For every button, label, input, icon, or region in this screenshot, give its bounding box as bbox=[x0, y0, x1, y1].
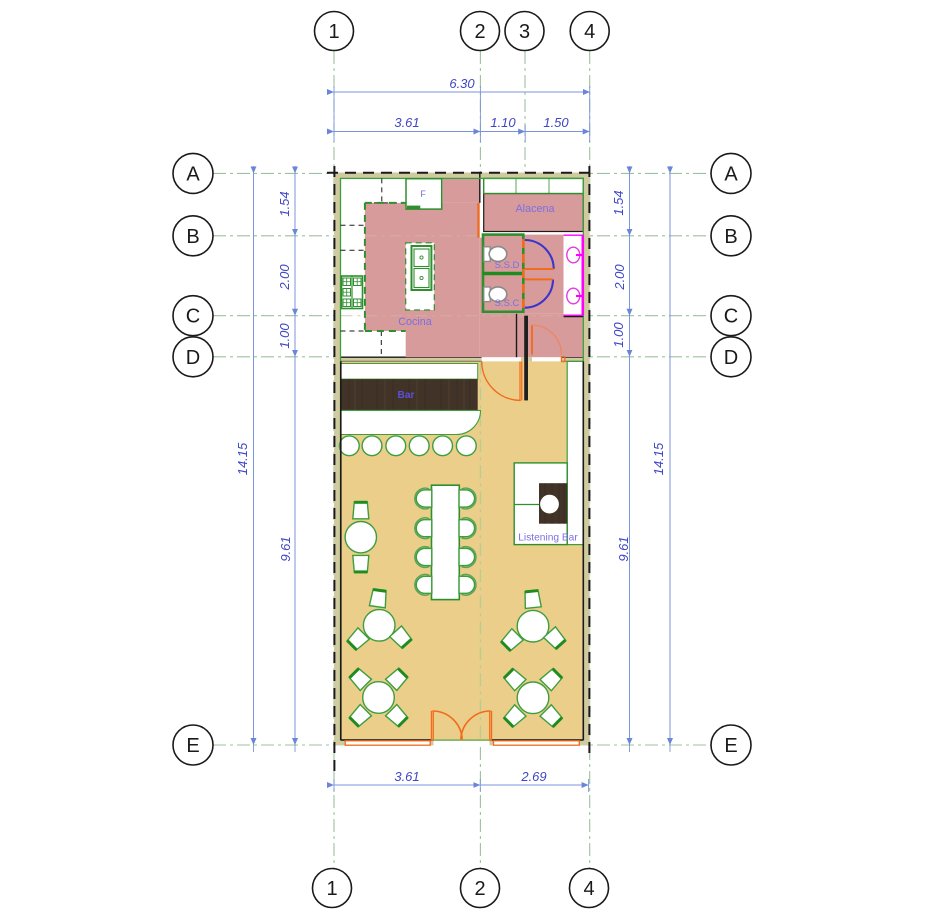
svg-text:1: 1 bbox=[326, 878, 337, 900]
svg-text:1.50: 1.50 bbox=[543, 115, 569, 130]
svg-text:3.61: 3.61 bbox=[394, 769, 419, 784]
svg-text:B: B bbox=[186, 226, 199, 248]
svg-text:3: 3 bbox=[519, 21, 530, 43]
svg-text:E: E bbox=[724, 735, 737, 757]
svg-text:2.00: 2.00 bbox=[612, 264, 627, 291]
svg-text:6.30: 6.30 bbox=[449, 76, 475, 91]
svg-text:B: B bbox=[724, 226, 737, 248]
svg-text:2: 2 bbox=[474, 21, 485, 43]
svg-text:F: F bbox=[420, 189, 426, 199]
svg-text:A: A bbox=[724, 163, 738, 185]
svg-text:1.10: 1.10 bbox=[490, 115, 516, 130]
svg-text:2.00: 2.00 bbox=[277, 264, 292, 291]
svg-text:Cocina: Cocina bbox=[398, 316, 432, 328]
svg-text:4: 4 bbox=[584, 21, 595, 43]
svg-text:9.61: 9.61 bbox=[278, 536, 293, 561]
svg-text:1: 1 bbox=[328, 21, 339, 43]
svg-text:A: A bbox=[186, 163, 200, 185]
svg-text:1.54: 1.54 bbox=[611, 190, 626, 215]
svg-text:D: D bbox=[186, 347, 200, 369]
svg-text:14.15: 14.15 bbox=[651, 442, 666, 475]
svg-text:1.54: 1.54 bbox=[277, 191, 292, 216]
svg-text:C: C bbox=[724, 306, 738, 328]
svg-text:C: C bbox=[186, 306, 200, 328]
svg-text:1.00: 1.00 bbox=[277, 323, 292, 349]
svg-text:9.61: 9.61 bbox=[616, 536, 631, 561]
svg-text:14.15: 14.15 bbox=[235, 442, 250, 475]
svg-text:1.00: 1.00 bbox=[611, 322, 626, 348]
svg-text:2: 2 bbox=[474, 878, 485, 900]
svg-text:Alacena: Alacena bbox=[515, 203, 554, 215]
svg-text:Listening Bar: Listening Bar bbox=[518, 533, 578, 544]
svg-text:Bar: Bar bbox=[398, 390, 415, 401]
svg-text:S.S.C: S.S.C bbox=[495, 298, 520, 309]
svg-text:D: D bbox=[724, 347, 738, 369]
svg-text:3.61: 3.61 bbox=[394, 115, 419, 130]
svg-text:4: 4 bbox=[583, 878, 594, 900]
svg-text:S.S.D: S.S.D bbox=[495, 260, 520, 271]
svg-text:2.69: 2.69 bbox=[520, 769, 546, 784]
svg-text:E: E bbox=[186, 735, 199, 757]
